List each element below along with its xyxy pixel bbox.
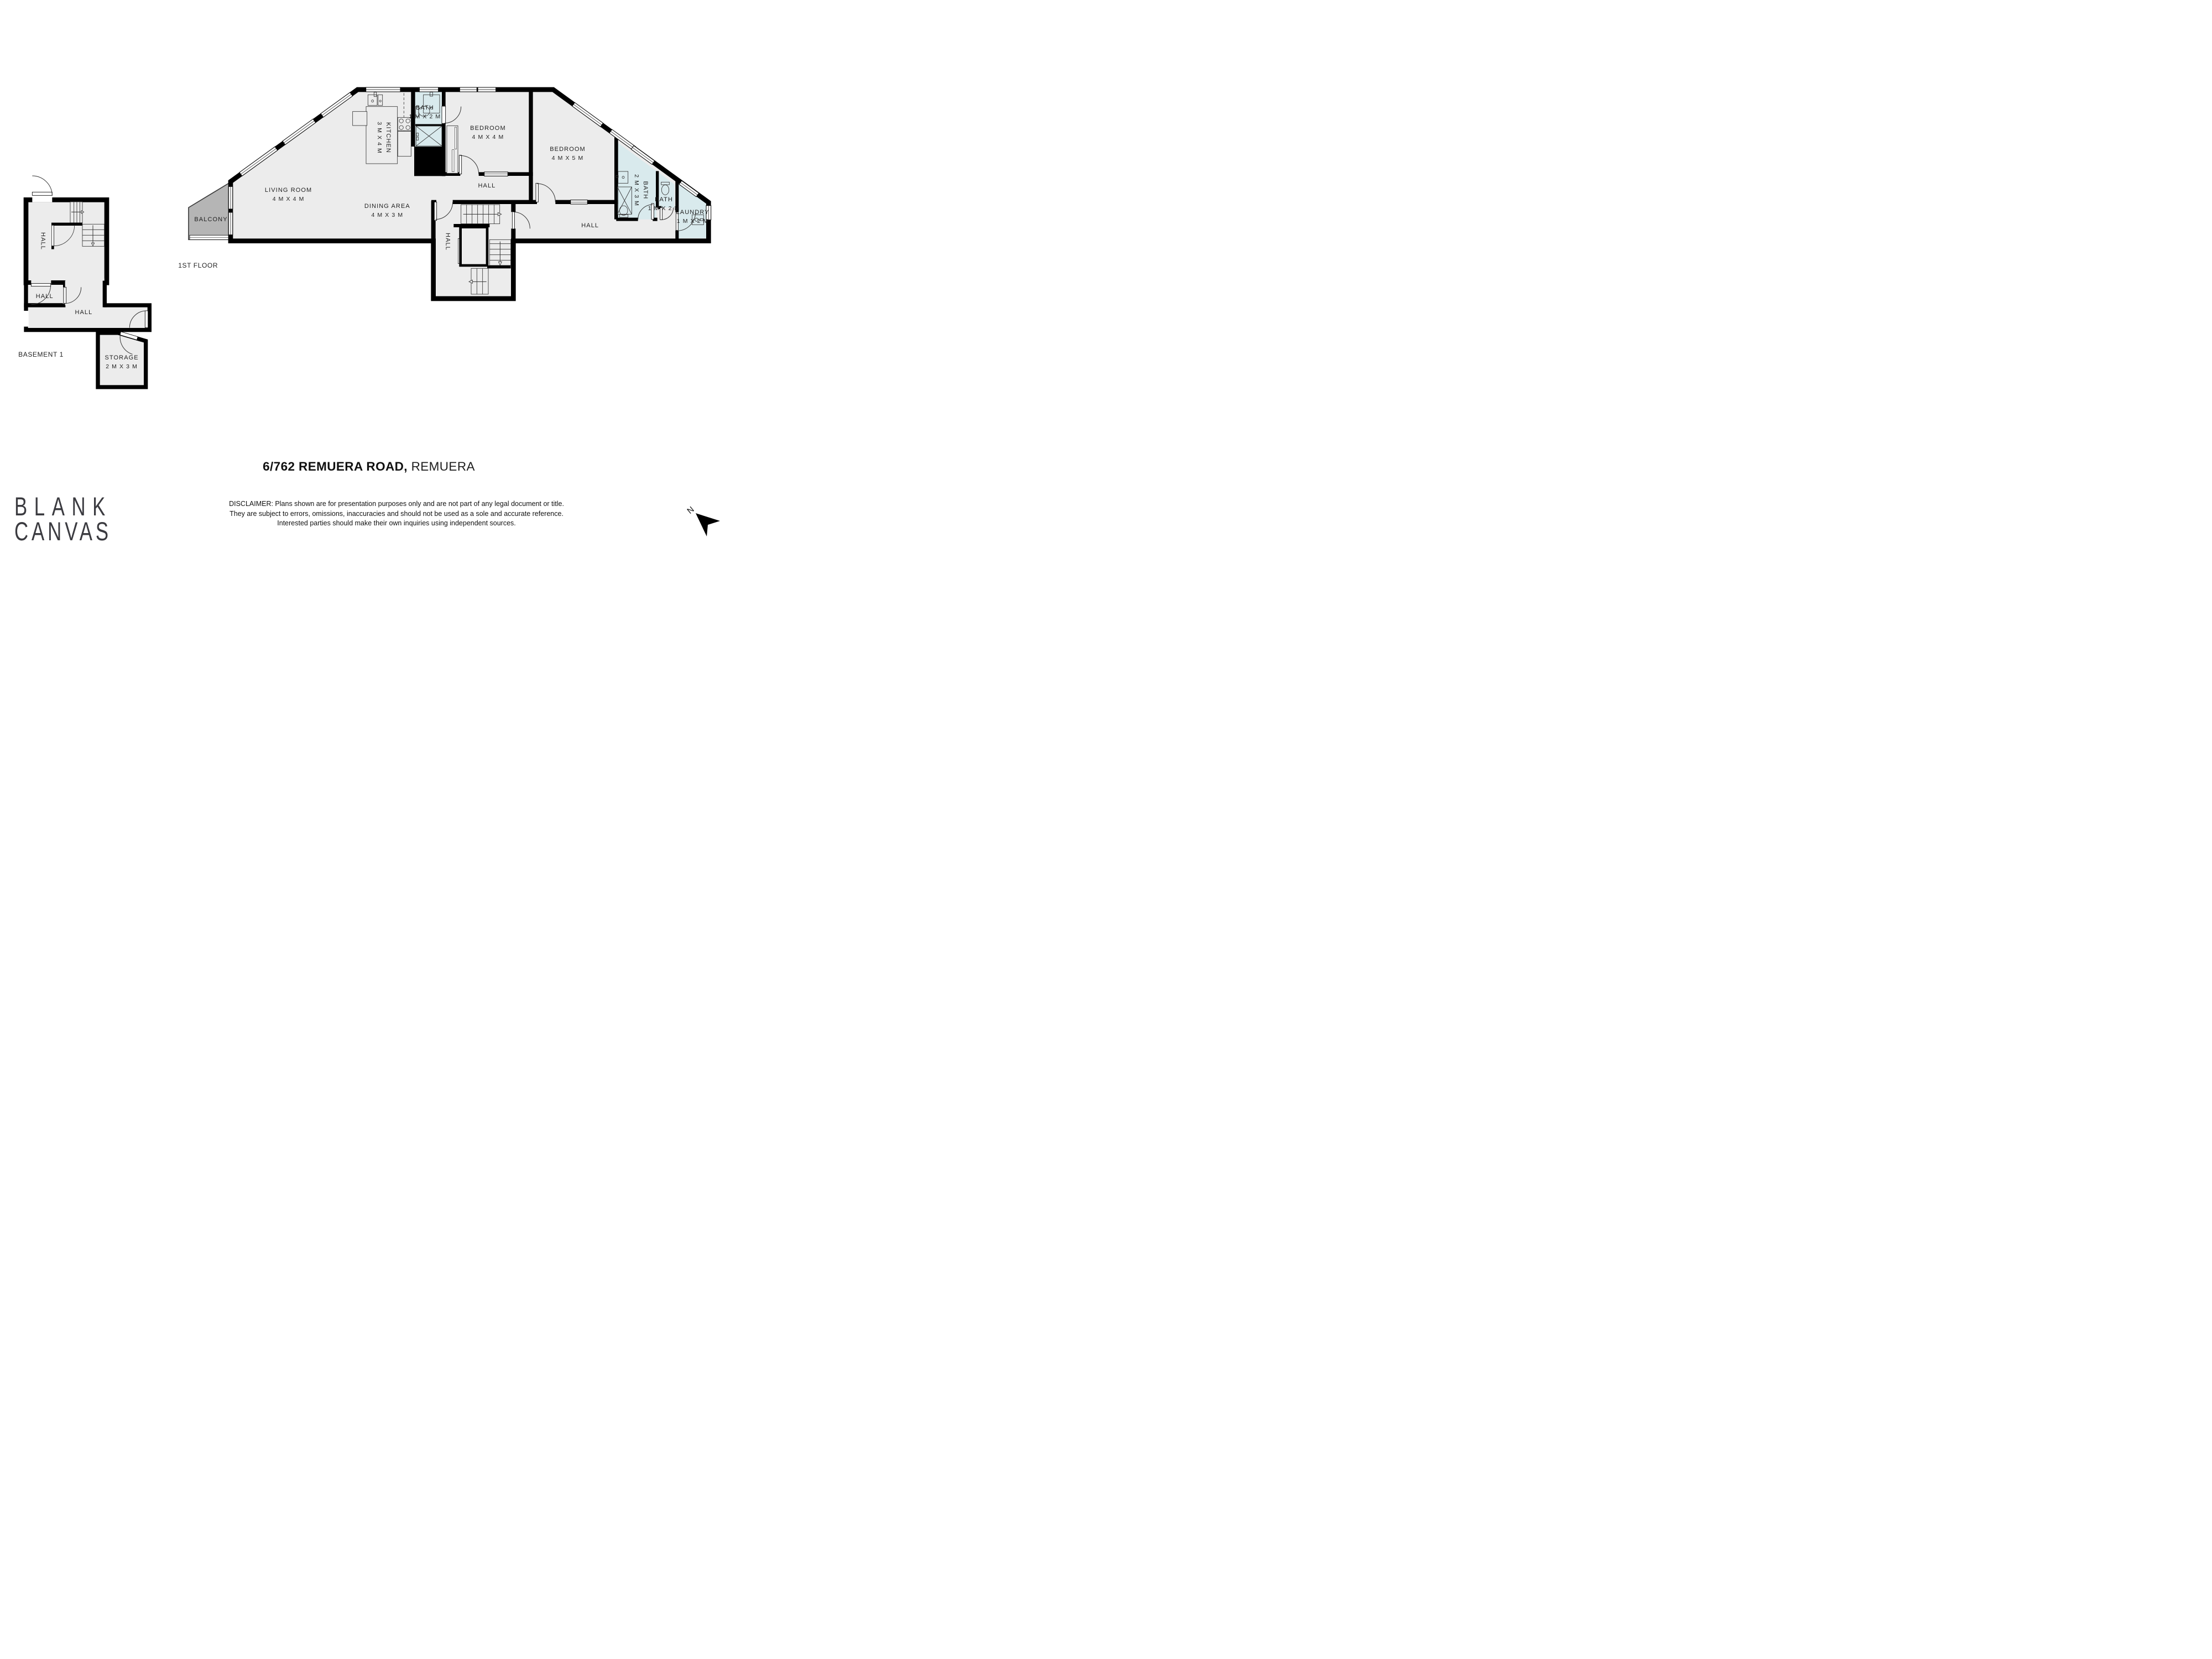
balcony-area [189, 182, 231, 239]
bedroom-2-door [536, 183, 538, 202]
label-bedroom-1: BEDROOM4 M X 4 M [470, 124, 506, 142]
north-arrow-icon: N [686, 502, 730, 546]
service-void [414, 147, 445, 176]
entry-door [32, 192, 52, 195]
label-living-room: LIVING ROOM4 M X 4 M [265, 186, 312, 204]
label-dining-area: DINING AREA4 M X 3 M [364, 202, 410, 220]
floor-plan-sheet: LIVING ROOM4 M X 4 MDINING AREA4 M X 3 M… [0, 0, 738, 553]
title-suburb: REMUERA [411, 460, 475, 473]
label-bath-top: BATH1 M X 2 M [409, 103, 441, 121]
bath-top-door [442, 106, 446, 123]
disclaimer-text: DISCLAIMER: Plans shown are for presenta… [55, 499, 738, 529]
page-title: 6/762 REMUERA ROAD, REMUERA [0, 460, 738, 474]
label-bedroom-2: BEDROOM4 M X 5 M [550, 145, 586, 163]
label-hall-basement-corr: HALL [75, 308, 92, 317]
label-caption-basement-1: BASEMENT 1 [18, 349, 64, 359]
windows-top-wall [366, 87, 496, 92]
label-hall-upper: HALL [478, 181, 495, 191]
label-hall-basement-small: HALL [36, 292, 54, 301]
label-caption-1st-floor: 1ST FLOOR [178, 260, 218, 270]
label-hall-lower: HALL [581, 221, 599, 231]
closet [447, 126, 458, 173]
hall-door [434, 202, 436, 220]
label-laundry: LAUNDRY1 M X 2 M [676, 208, 709, 226]
label-hall-center: HALL [443, 233, 452, 251]
label-kitchen: KITCHEN3 M X 4 M [375, 122, 393, 154]
bedroom-1-door [459, 155, 461, 174]
stair-door [512, 212, 514, 229]
label-bath-small: BATH1 M X 2 M [648, 195, 680, 213]
title-address: 6/762 REMUERA ROAD, [263, 460, 408, 473]
label-balcony: BALCONY [194, 215, 227, 225]
disclaimer-line-1: DISCLAIMER: Plans shown are for presenta… [55, 499, 738, 509]
label-hall-basement-top: HALL [38, 232, 47, 250]
disclaimer-line-3: Interested parties should make their own… [55, 519, 738, 529]
disclaimer-line-2: They are subject to errors, omissions, i… [55, 509, 738, 519]
label-bath-ensuite: BATH2 M X 3 M [632, 174, 650, 206]
label-storage: STORAGE2 M X 3 M [105, 353, 138, 371]
north-label: N [686, 505, 696, 516]
